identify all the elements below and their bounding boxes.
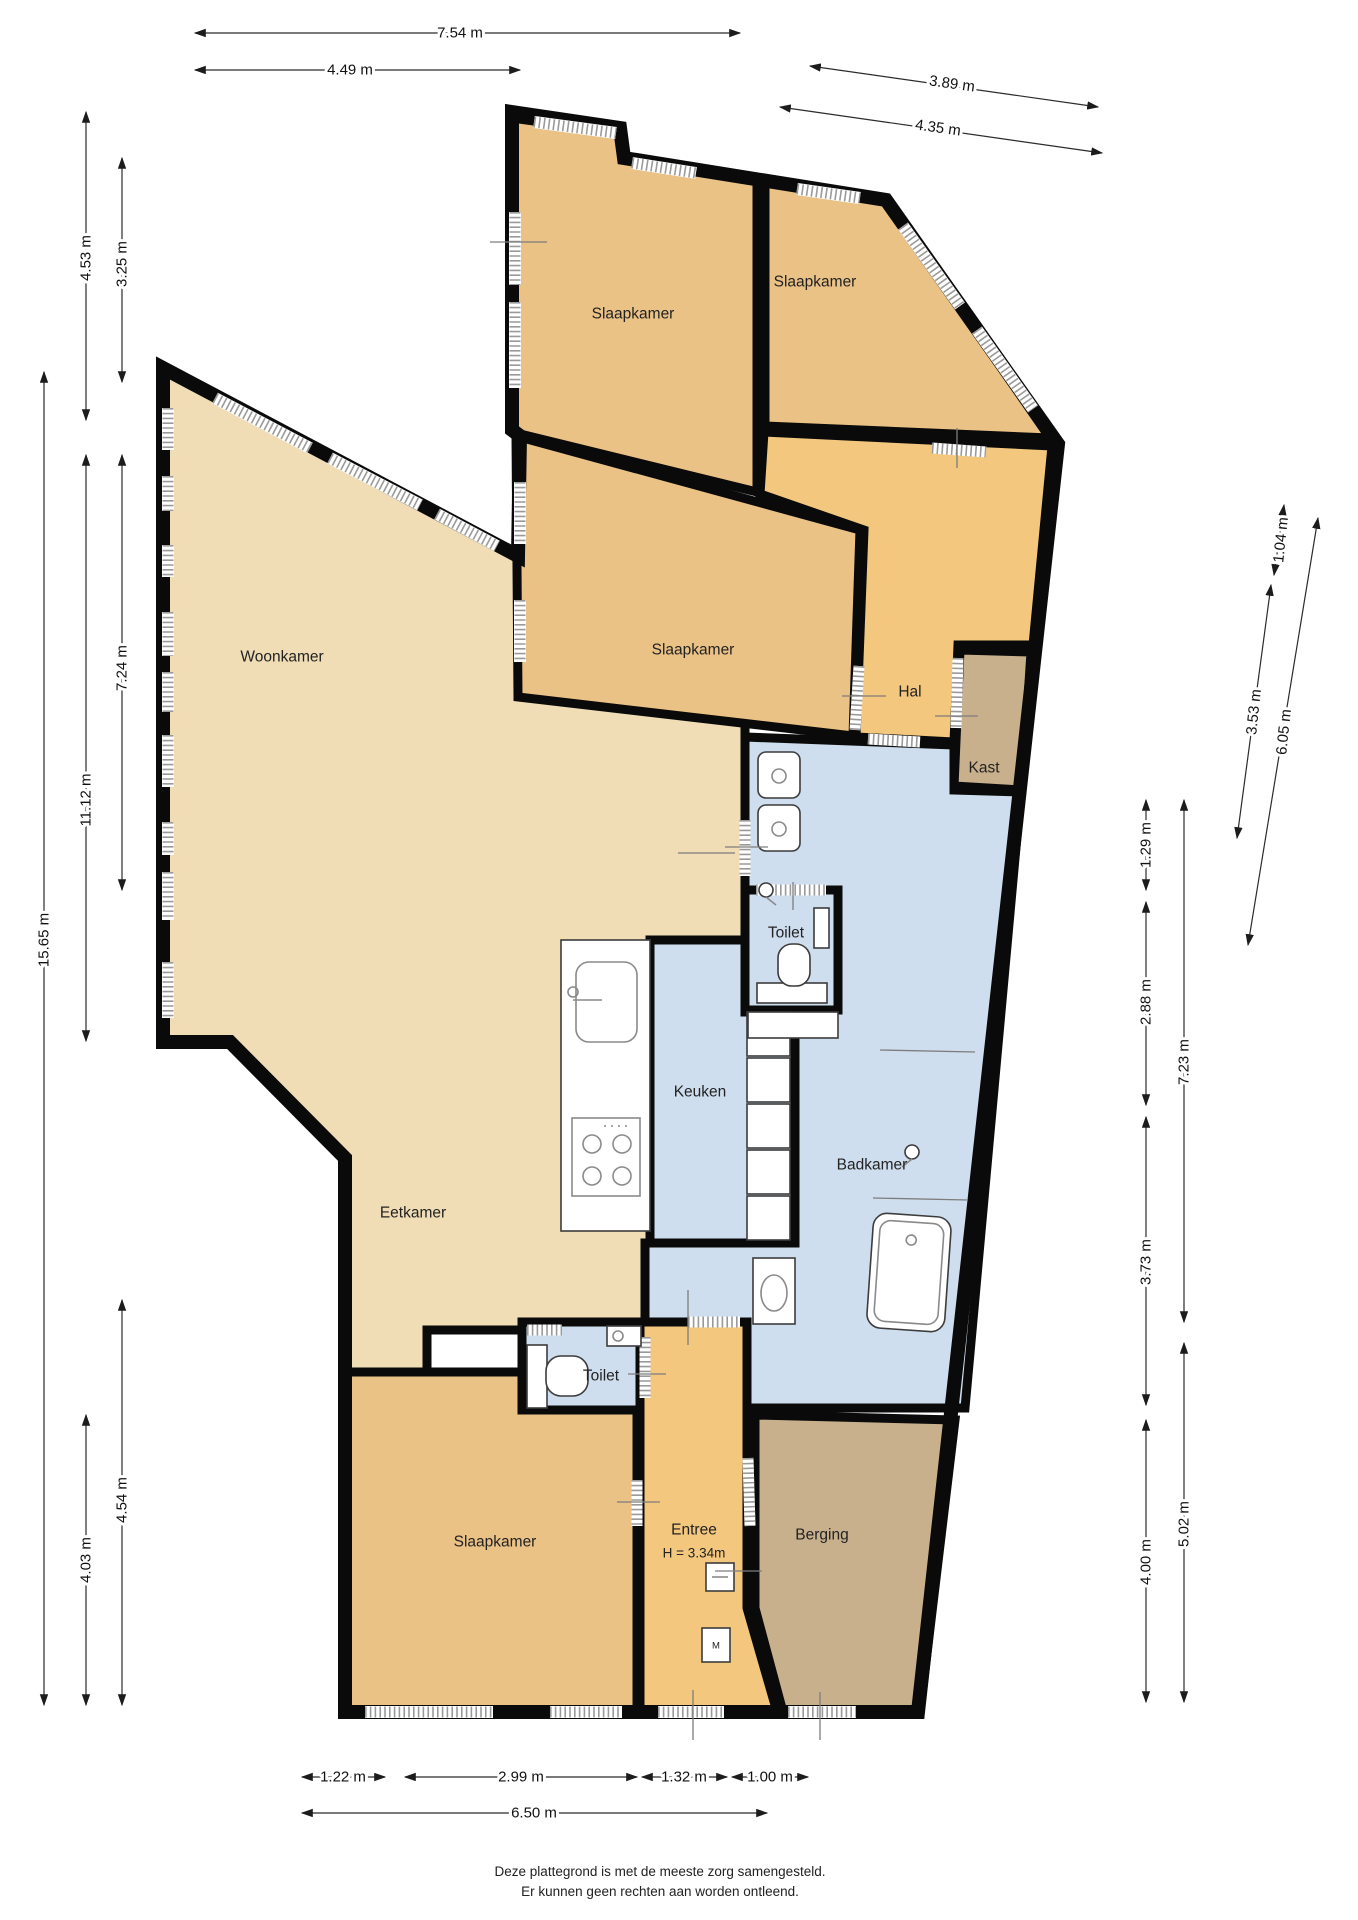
dimension-label: 6.05 m — [1273, 708, 1295, 755]
small-sink — [607, 1326, 641, 1346]
dimension-label: 7.54 m — [437, 25, 483, 42]
dimension-label: 1.00 m — [747, 1769, 793, 1786]
dimension-label: 1.22 m — [320, 1769, 366, 1786]
dimension-label: 15.65 m — [36, 913, 53, 967]
room-label-entree-height: H = 3.34m — [663, 1546, 726, 1561]
toilet-bowl-icon — [778, 944, 810, 986]
dimension-label: 11.12 m — [78, 773, 95, 826]
dimension-label: 1.29 m — [1138, 822, 1155, 868]
footer-line-2: Er kunnen geen rechten aan worden ontlee… — [521, 1884, 799, 1899]
room-label-toilet-boven: Toilet — [768, 925, 805, 942]
room-label-entree: Entree — [671, 1522, 717, 1539]
kitchen-cabinets — [747, 1012, 790, 1240]
room-label-toilet-onder: Toilet — [583, 1368, 620, 1385]
dimension-label: 3.25 m — [114, 241, 131, 287]
dimension-label: 4.54 m — [114, 1477, 131, 1523]
floorplan-page: M Slaapkamer Slaapkamer Slaapkamer Hal K… — [0, 0, 1358, 1920]
room-label-badkamer: Badkamer — [837, 1157, 908, 1174]
washbasin — [758, 805, 800, 851]
dimension-label: 4.35 m — [914, 116, 962, 139]
dimension-label: 4.49 m — [327, 62, 373, 79]
dimension-label: 2.99 m — [498, 1769, 544, 1786]
shelf — [748, 1012, 838, 1038]
washbasin — [753, 1258, 795, 1324]
room-label-slaapkamer-topright: Slaapkamer — [774, 274, 857, 291]
dimension-label: 4.03 m — [78, 1537, 95, 1583]
dimension-label: 7.23 m — [1176, 1039, 1193, 1085]
toilet-tank — [527, 1345, 547, 1408]
washbasin — [758, 752, 800, 798]
dimension-label: 2.88 m — [1138, 979, 1155, 1025]
room-label-berging: Berging — [795, 1527, 848, 1544]
room-label-slaapkamer-onder: Slaapkamer — [454, 1534, 537, 1551]
dimension-label: 1.32 m — [661, 1769, 707, 1786]
dimension-label: 3.89 m — [928, 72, 976, 95]
footer-line-1: Deze plattegrond is met de meeste zorg s… — [495, 1864, 826, 1879]
room-label-kast: Kast — [968, 760, 1000, 777]
dimension-label: 1.04 m — [1270, 516, 1292, 563]
room-label-slaapkamer-topleft: Slaapkamer — [592, 306, 675, 323]
room-label-keuken: Keuken — [674, 1084, 727, 1101]
dimension-label: 3.73 m — [1138, 1239, 1155, 1285]
door — [855, 666, 859, 730]
dimension-label: 6.50 m — [511, 1805, 557, 1822]
door — [748, 1458, 750, 1526]
room-label-hal: Hal — [898, 684, 921, 701]
toilet-bowl-icon — [546, 1356, 588, 1396]
cistern — [814, 908, 829, 948]
room-label-slaapkamer-middle: Slaapkamer — [652, 642, 735, 659]
room-label-eetkamer: Eetkamer — [380, 1205, 446, 1222]
dimension-label: 3.53 m — [1243, 688, 1265, 735]
dimension-label: 7.24 m — [114, 645, 131, 691]
door — [956, 658, 958, 728]
footer: Deze plattegrond is met de meeste zorg s… — [495, 1864, 826, 1899]
door — [932, 448, 986, 452]
bathtub — [866, 1212, 952, 1332]
door — [868, 739, 920, 742]
dimension-label: 5.02 m — [1176, 1501, 1193, 1547]
rooms-layer — [163, 118, 1052, 1714]
dimension-label: 4.00 m — [1138, 1539, 1155, 1585]
room-label-woonkamer: Woonkamer — [240, 649, 323, 666]
meterkast-label: M — [712, 1641, 720, 1652]
dimension-label: 4.53 m — [78, 235, 95, 281]
floorplan-drawing: M Slaapkamer Slaapkamer Slaapkamer Hal K… — [0, 0, 1358, 1920]
